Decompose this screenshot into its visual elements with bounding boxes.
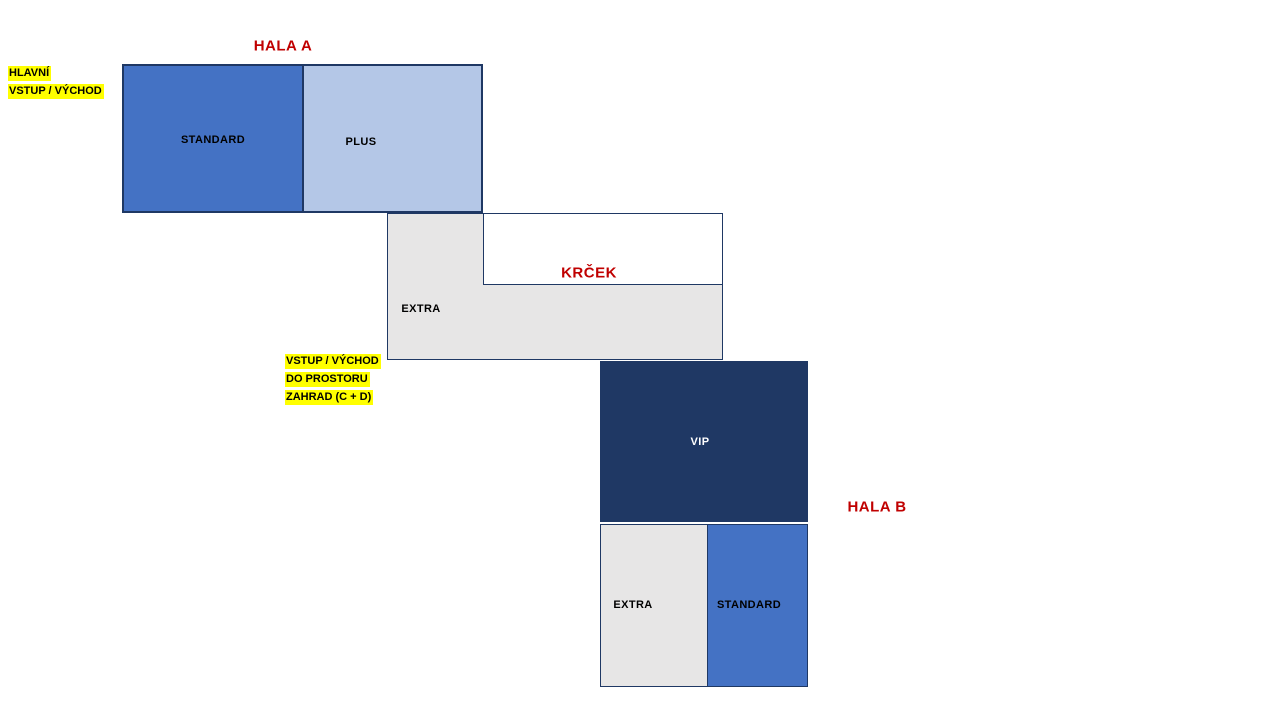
garden-entrance-line-2: DO PROSTORU [285,370,381,388]
hall-a-standard-label: STANDARD [181,134,245,146]
main-entrance-line-1: HLAVNÍ [8,64,104,82]
garden-entrance-line-3: ZAHRAD (C + D) [285,388,381,406]
krcek-extra-label: EXTRA [401,303,440,315]
main-entrance-line-2: VSTUP / VÝCHOD [8,82,104,100]
hall-a-block [122,64,483,213]
hall-b-standard-label: STANDARD [717,599,781,611]
hall-b-title: HALA B [847,499,906,516]
floor-plan-canvas: HALA A KRČEK HALA B STANDARD PLUS EXTRA … [0,0,1280,720]
hall-a-plus-label: PLUS [346,136,377,148]
hall-a-title: HALA A [254,38,313,55]
krcek-title: KRČEK [561,265,617,282]
main-entrance-label: HLAVNÍ VSTUP / VÝCHOD [8,64,104,100]
garden-entrance-line-1: VSTUP / VÝCHOD [285,352,381,370]
hall-b-vip-label: VIP [691,436,710,448]
hall-b-extra-label: EXTRA [613,599,652,611]
hall-a-plus-zone [302,66,481,211]
garden-entrance-label: VSTUP / VÝCHOD DO PROSTORU ZAHRAD (C + D… [285,352,381,406]
